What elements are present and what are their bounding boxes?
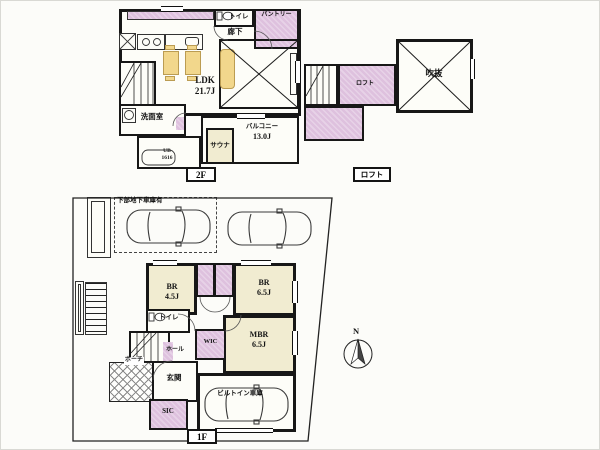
retaining-wall-inner — [91, 201, 105, 253]
window — [241, 260, 271, 266]
balcony-label: バルコニー 13.0J — [239, 122, 285, 142]
ldk-label: LDK 21.7J — [184, 75, 226, 98]
mbr-name: MBR — [250, 330, 269, 339]
bath-name: UB — [163, 148, 171, 154]
floorplan-canvas: 廊下 トイレ パントリー LDK 21.7J 洗面室 UB 1616 サウナ バ… — [0, 0, 600, 450]
loft-area-lower — [304, 106, 364, 141]
wic-label: WIC — [197, 338, 224, 346]
br2-name: BR — [258, 278, 269, 287]
hall-label: ホール — [166, 347, 184, 355]
dining-table — [163, 51, 179, 75]
mbr-size: 6.5J — [252, 340, 266, 349]
north-arrow-icon — [344, 339, 372, 368]
balcony-door-window — [237, 113, 265, 119]
stair-handrail-inner — [78, 284, 81, 332]
loft-room-label: ロフト — [349, 81, 381, 89]
bath-size: 1616 — [162, 155, 173, 161]
closet-1 — [196, 263, 215, 297]
washroom-label: 洗面室 — [127, 112, 177, 121]
retaining-wall — [87, 197, 111, 258]
br1-label: BR 4.5J — [148, 282, 196, 302]
br2-size: 6.5J — [257, 288, 271, 297]
floor-label-2f: 2F — [186, 167, 216, 182]
garage-door — [215, 428, 273, 433]
window — [470, 59, 475, 79]
stairs-2f — [119, 61, 156, 106]
bath-label: UB 1616 — [156, 148, 178, 162]
window — [153, 260, 177, 266]
stair-handrail — [75, 281, 84, 335]
balcony-name: バルコニー — [246, 123, 278, 130]
room-garage — [197, 373, 296, 432]
window — [161, 6, 183, 12]
north-label: N — [353, 326, 359, 337]
parking-note: 下部地下車庫有 — [117, 197, 163, 205]
corridor-label: 廊下 — [221, 27, 249, 36]
toilet-1f-label: トイレ — [159, 314, 179, 322]
porch-label: ポーチ — [124, 357, 144, 365]
void-label: 吹抜 — [414, 68, 454, 79]
kitchen-counter-strip — [127, 11, 214, 20]
sic-label: SIC — [156, 407, 180, 416]
approach-stairs — [85, 282, 107, 335]
fridge-box — [119, 33, 136, 50]
floor-label-1f: 1F — [187, 429, 217, 444]
chair — [187, 45, 197, 50]
entrance-label: 玄関 — [157, 373, 191, 382]
chair — [165, 76, 175, 81]
br2-label: BR 6.5J — [239, 278, 289, 298]
parking-space-outline — [114, 197, 217, 253]
porch — [109, 362, 154, 402]
br1-name: BR — [166, 282, 177, 291]
closet-2 — [214, 263, 234, 297]
sauna-label: サウナ — [207, 142, 233, 150]
mbr-label: MBR 6.5J — [229, 330, 289, 350]
window — [292, 281, 298, 303]
toilet-2f-label: トイレ — [229, 13, 249, 21]
stove-box — [137, 34, 165, 50]
window — [295, 61, 301, 83]
stairs-loft — [304, 64, 338, 106]
chair — [165, 45, 175, 50]
garage-label: ビルトイン車庫 — [211, 390, 269, 398]
ldk-name: LDK — [195, 75, 215, 85]
balcony-size: 13.0J — [253, 132, 271, 141]
washroom-closet — [176, 117, 184, 130]
ldk-size: 21.7J — [195, 86, 215, 96]
window — [292, 331, 298, 355]
floor-label-loft: ロフト — [353, 167, 391, 182]
pantry-label: パントリー — [255, 12, 298, 20]
dining-table — [185, 51, 201, 75]
car-icon — [228, 209, 311, 248]
br1-size: 4.5J — [165, 292, 179, 301]
